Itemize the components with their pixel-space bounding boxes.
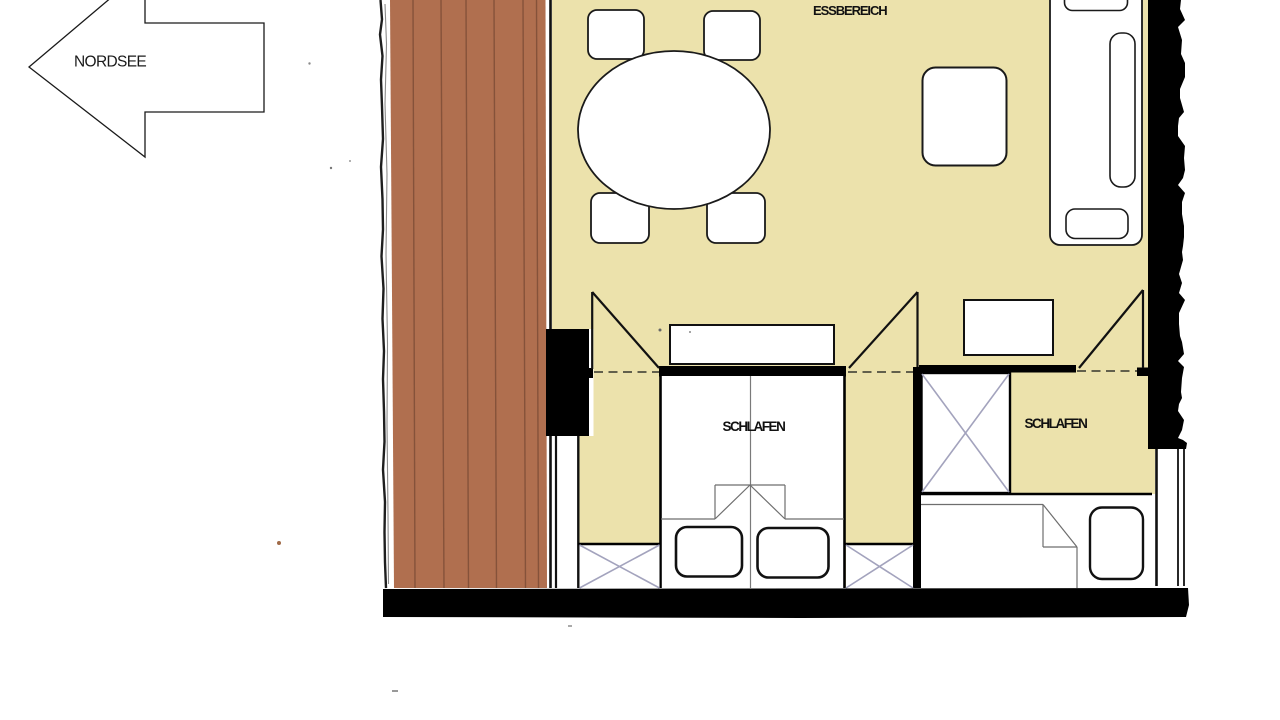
svg-text:NORDSEE: NORDSEE (74, 54, 146, 71)
svg-text:SCHLAFEN: SCHLAFEN (723, 419, 786, 434)
svg-text:SCHLAFEN: SCHLAFEN (1025, 416, 1088, 431)
svg-text:ESSBEREICH: ESSBEREICH (813, 3, 887, 18)
